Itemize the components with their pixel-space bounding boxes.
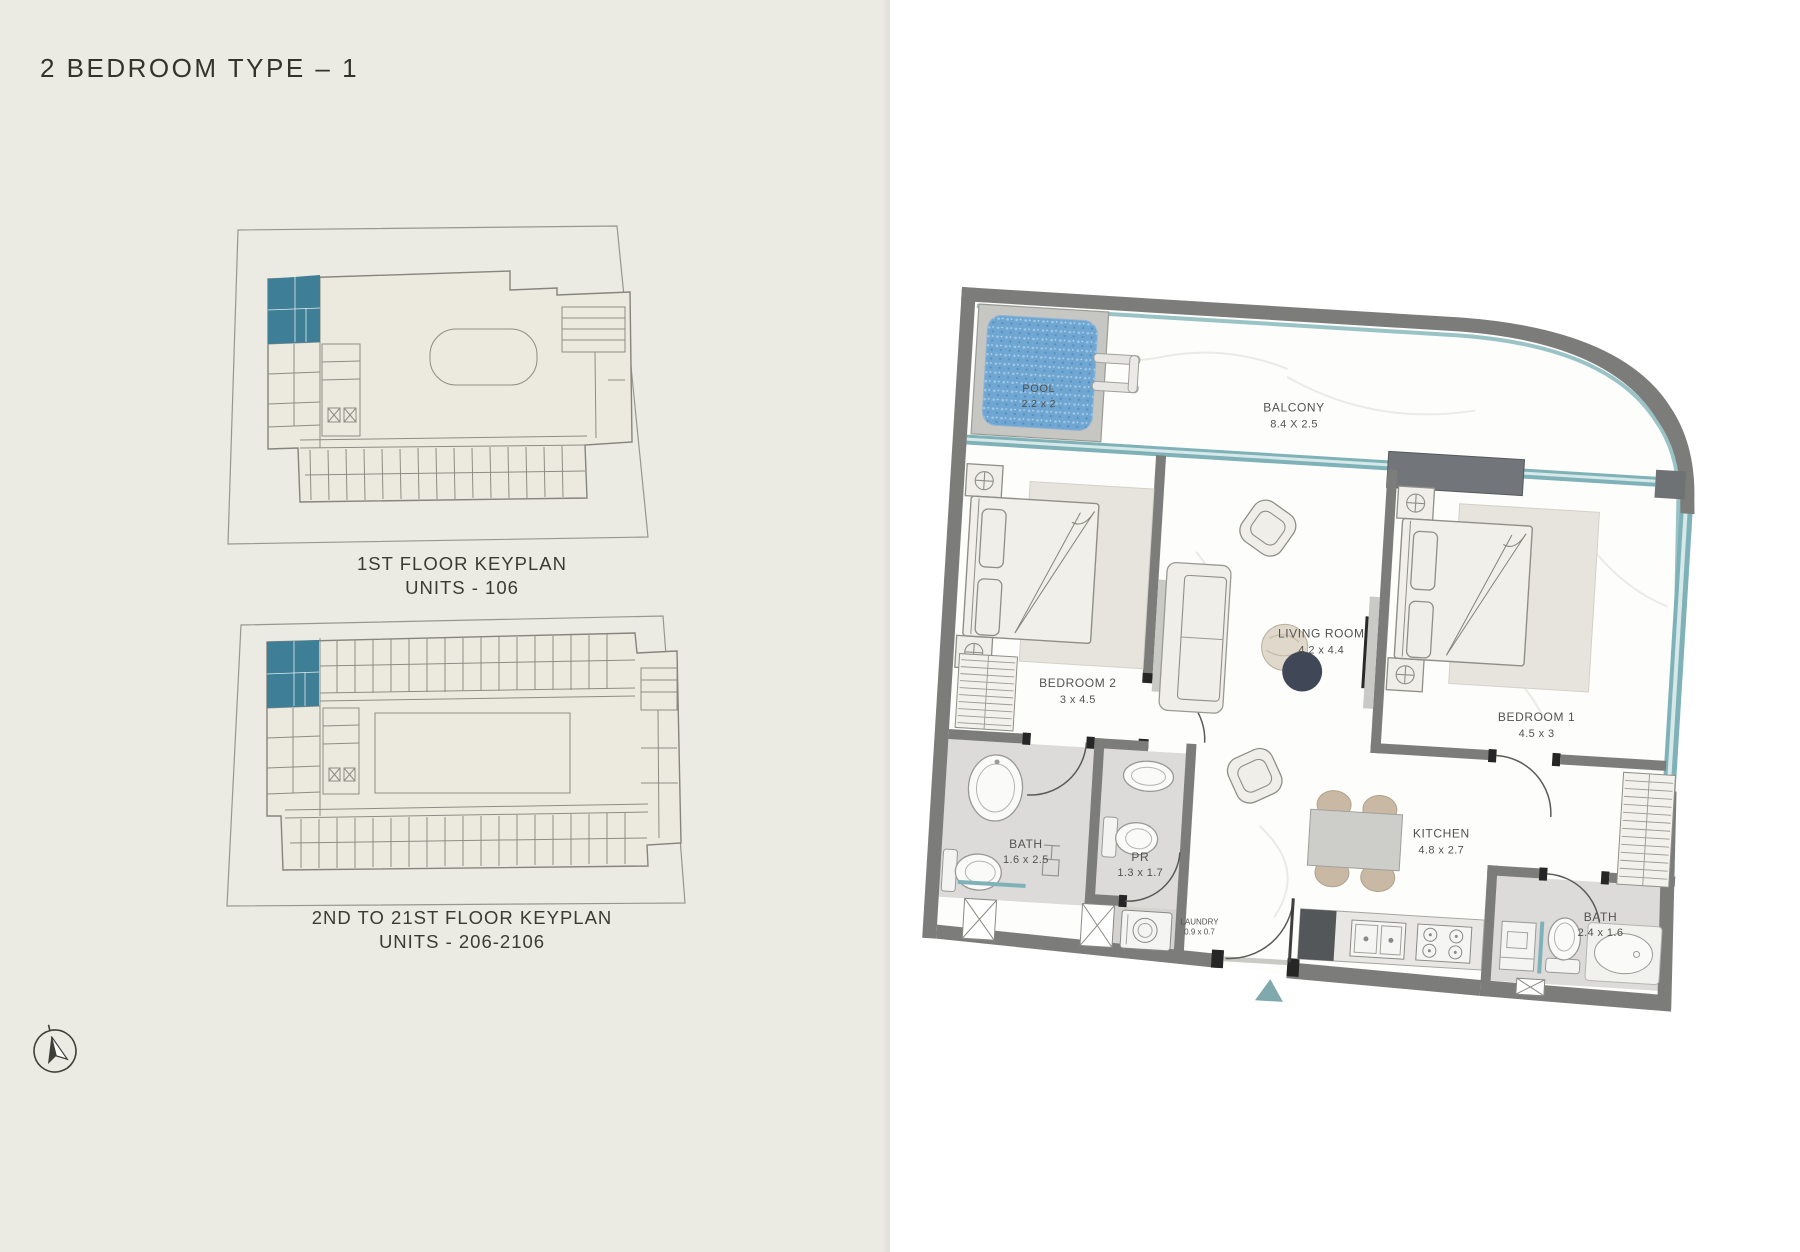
shaft [1080, 904, 1115, 948]
svg-text:BEDROOM 1: BEDROOM 1 [1498, 710, 1575, 724]
compass-north-icon [20, 1014, 90, 1084]
keyplan2-caption-line2: UNITS - 206-2106 [212, 930, 712, 954]
wardrobe [955, 654, 1017, 731]
dining-table [1307, 809, 1402, 871]
svg-text:KITCHEN: KITCHEN [1413, 826, 1470, 840]
keyplan1-caption-line1: 1ST FLOOR KEYPLAN [212, 552, 712, 576]
svg-text:PR: PR [1131, 850, 1149, 864]
keyplan2-caption: 2ND TO 21ST FLOOR KEYPLAN UNITS - 206-21… [212, 906, 712, 954]
keyplan2-caption-line1: 2ND TO 21ST FLOOR KEYPLAN [212, 906, 712, 930]
svg-text:4.2 x 4.4: 4.2 x 4.4 [1298, 645, 1344, 657]
svg-text:BALCONY: BALCONY [1263, 401, 1325, 415]
vanity [1499, 921, 1536, 971]
svg-text:1.6 x 2.5: 1.6 x 2.5 [1003, 854, 1049, 866]
svg-text:8.4 X 2.5: 8.4 X 2.5 [1270, 419, 1318, 431]
svg-text:1.3 x 1.7: 1.3 x 1.7 [1117, 867, 1163, 879]
cooktop [1416, 924, 1472, 963]
wardrobe [1617, 772, 1676, 887]
fridge [1298, 909, 1337, 961]
keyplan1-caption-line2: UNITS - 106 [212, 576, 712, 600]
keyplan-1st-floor [210, 212, 670, 557]
svg-text:0.9 x 0.7: 0.9 x 0.7 [1184, 928, 1215, 937]
svg-text:2.2 x 2: 2.2 x 2 [1022, 398, 1056, 410]
svg-text:POOL: POOL [1022, 383, 1055, 395]
svg-text:4.8 x 2.7: 4.8 x 2.7 [1418, 844, 1464, 856]
pillow [975, 579, 1002, 636]
floorplan: POOL 2.2 x 2 BALCONY 8.4 X 2.5 BEDROOM 2… [860, 228, 1780, 1038]
floorplan-geometry: POOL 2.2 x 2 BALCONY 8.4 X 2.5 BEDROOM 2… [920, 287, 1713, 1026]
svg-text:BATH: BATH [1009, 837, 1043, 851]
pillow [1406, 601, 1433, 658]
page-title: 2 BEDROOM TYPE – 1 [40, 53, 359, 84]
shaft [962, 898, 996, 940]
washing-machine [1120, 910, 1172, 951]
svg-text:2.4 x 1.6: 2.4 x 1.6 [1578, 927, 1624, 939]
svg-text:4.5 x 3: 4.5 x 3 [1519, 728, 1555, 740]
svg-text:LIVING ROOM: LIVING ROOM [1278, 627, 1365, 641]
pillow [1410, 531, 1437, 590]
svg-text:BEDROOM 2: BEDROOM 2 [1039, 676, 1116, 690]
shaft [1516, 978, 1545, 996]
keyplan-2nd-21st-floor [205, 598, 705, 928]
room-label-laundry: LAUNDRY 0.9 x 0.7 [1180, 918, 1219, 937]
entry-arrow-icon [1255, 978, 1284, 1002]
keyplan1-building [268, 271, 632, 502]
kitchen-sink [1350, 920, 1406, 959]
keyplan1-caption: 1ST FLOOR KEYPLAN UNITS - 106 [212, 552, 712, 600]
keyplan2-building [267, 633, 681, 870]
svg-text:BATH: BATH [1584, 910, 1618, 924]
svg-text:LAUNDRY: LAUNDRY [1180, 918, 1219, 927]
pillow [979, 509, 1006, 568]
svg-text:3 x 4.5: 3 x 4.5 [1060, 694, 1096, 706]
